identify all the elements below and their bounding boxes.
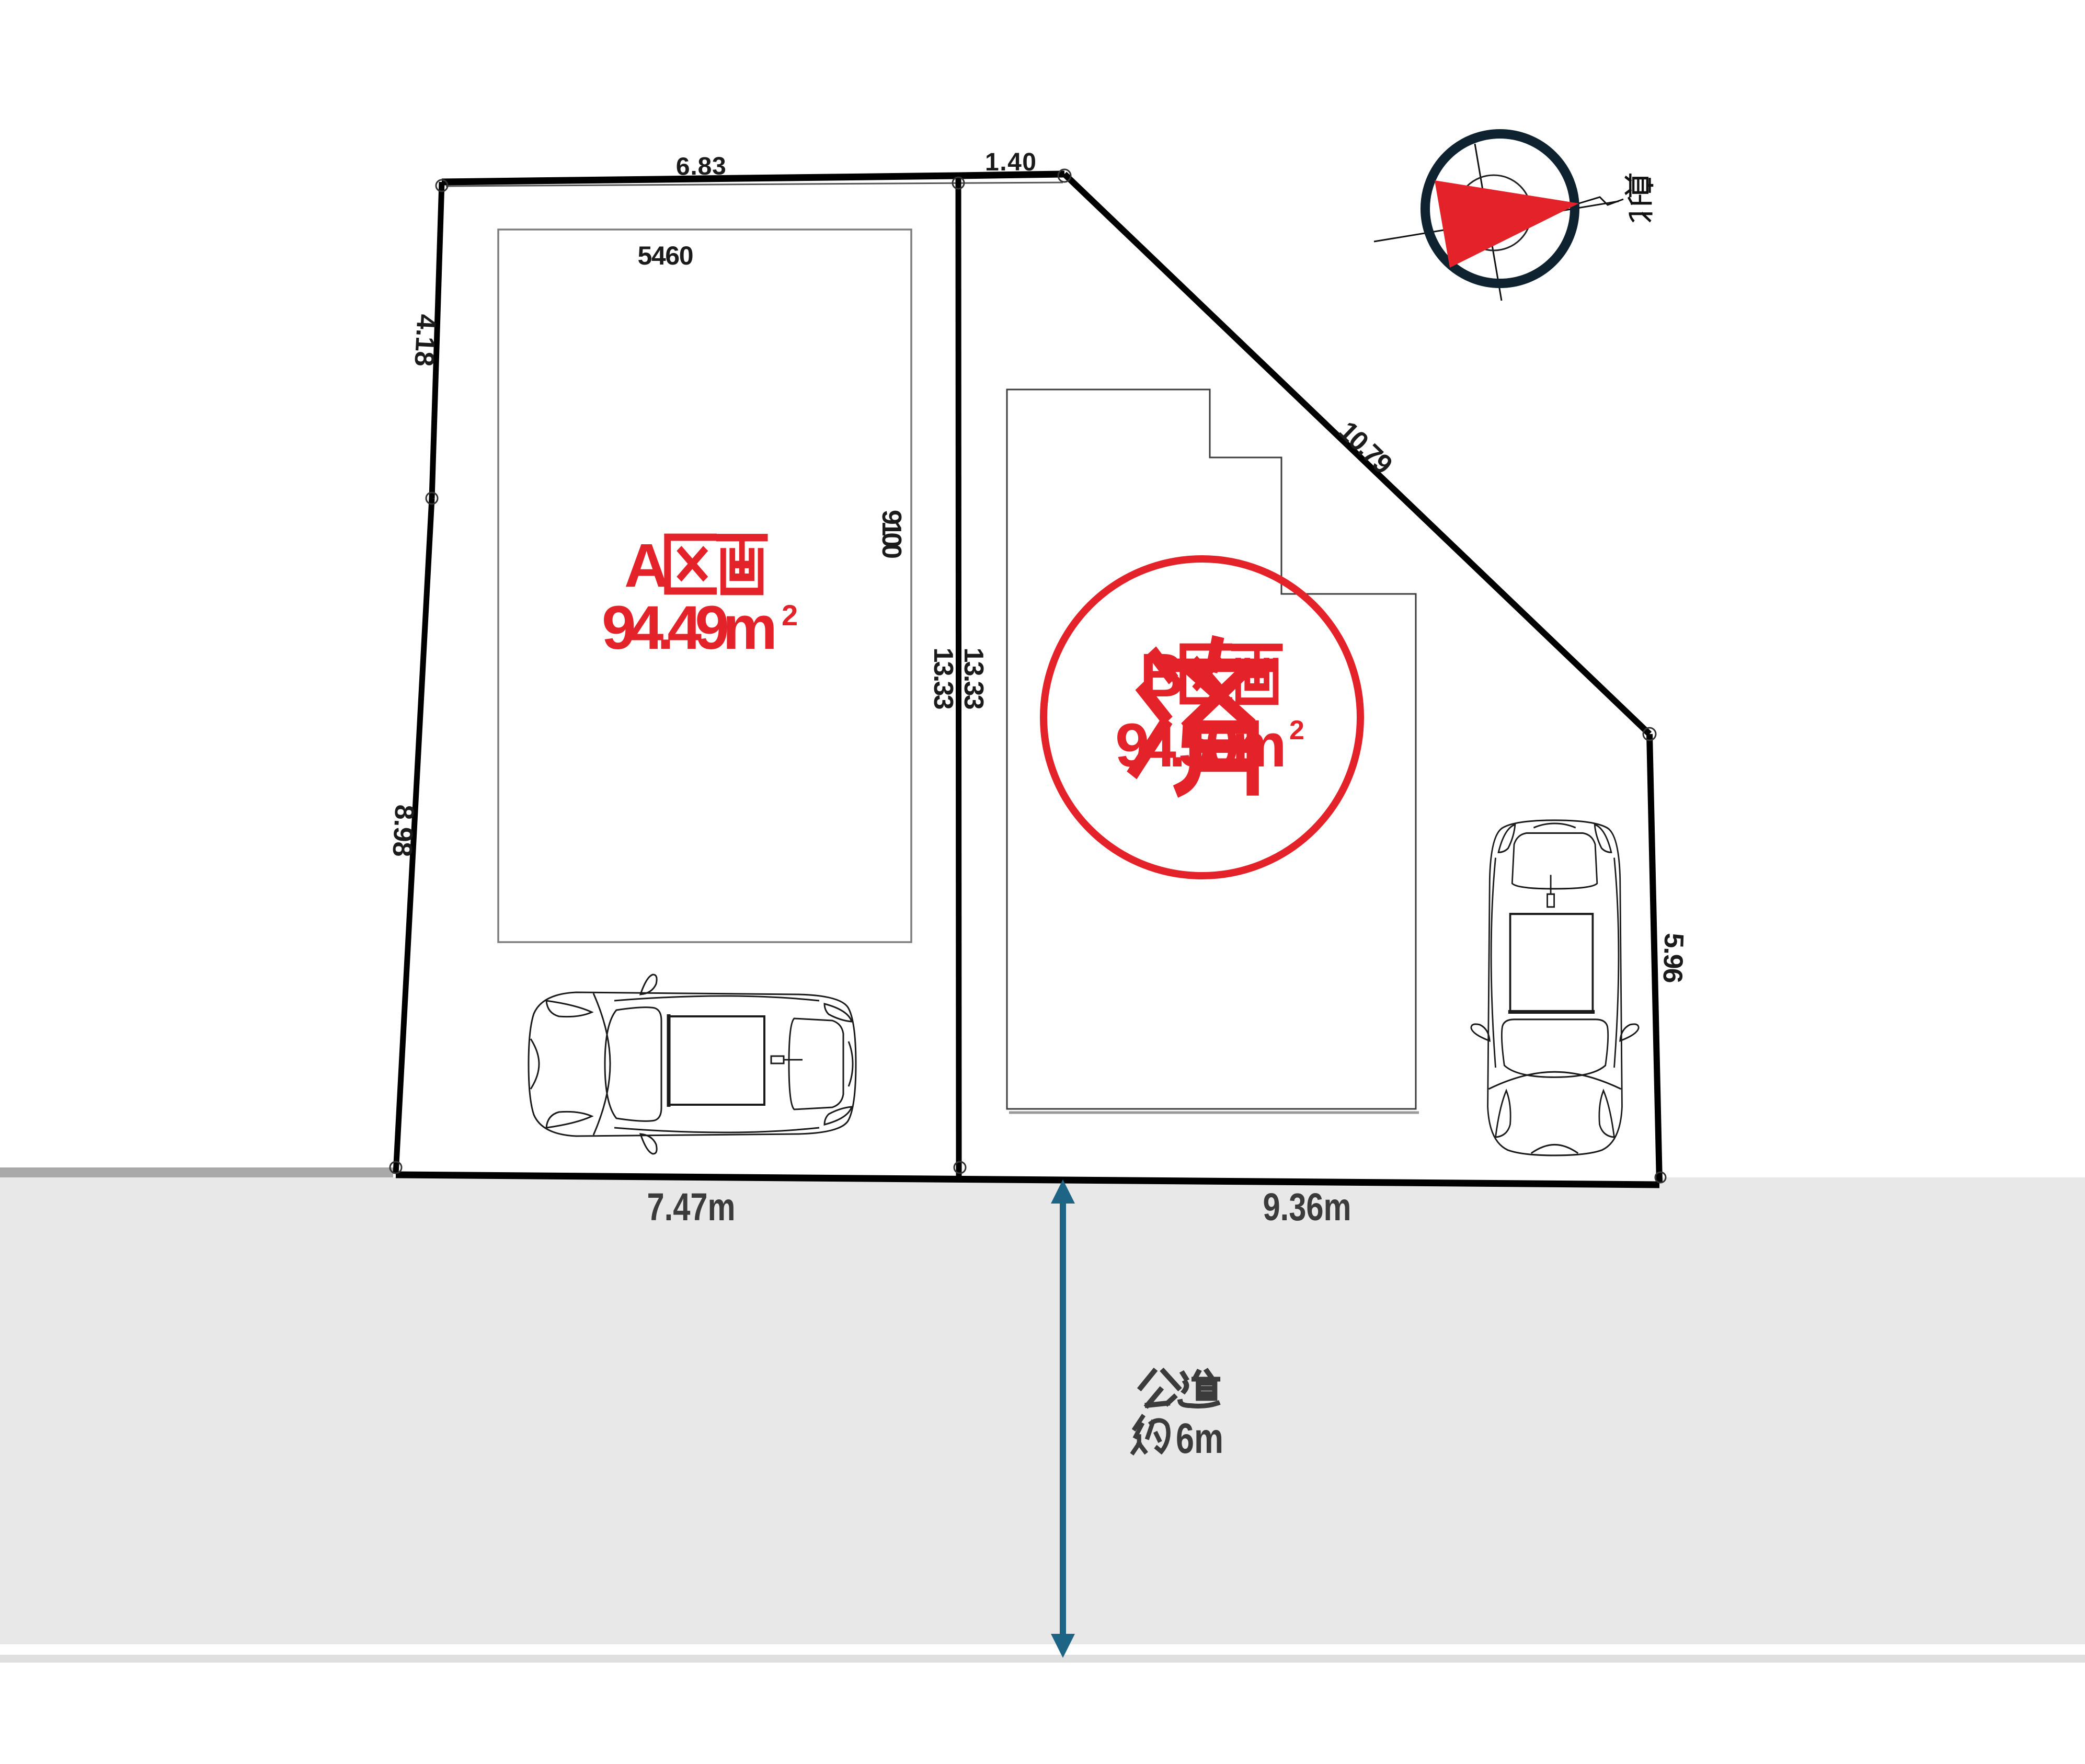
svg-text:94.49m: 94.49m — [602, 593, 777, 662]
svg-text:5.96: 5.96 — [1657, 933, 1689, 984]
svg-text:13.33: 13.33 — [958, 648, 989, 710]
svg-text:9100: 9100 — [876, 510, 907, 559]
svg-text:6m: 6m — [1176, 1415, 1223, 1462]
svg-text:1.40: 1.40 — [985, 148, 1036, 176]
svg-text:6.83: 6.83 — [675, 152, 726, 180]
svg-text:A: A — [624, 531, 669, 600]
svg-text:5460: 5460 — [638, 241, 694, 270]
svg-text:8.98: 8.98 — [386, 804, 419, 857]
svg-text:2: 2 — [1289, 715, 1304, 746]
svg-text:4.18: 4.18 — [408, 313, 441, 367]
svg-text:2: 2 — [782, 599, 798, 632]
svg-text:9.36m: 9.36m — [1263, 1185, 1351, 1229]
svg-text:7.47m: 7.47m — [647, 1185, 736, 1229]
svg-text:13.33: 13.33 — [928, 648, 958, 710]
